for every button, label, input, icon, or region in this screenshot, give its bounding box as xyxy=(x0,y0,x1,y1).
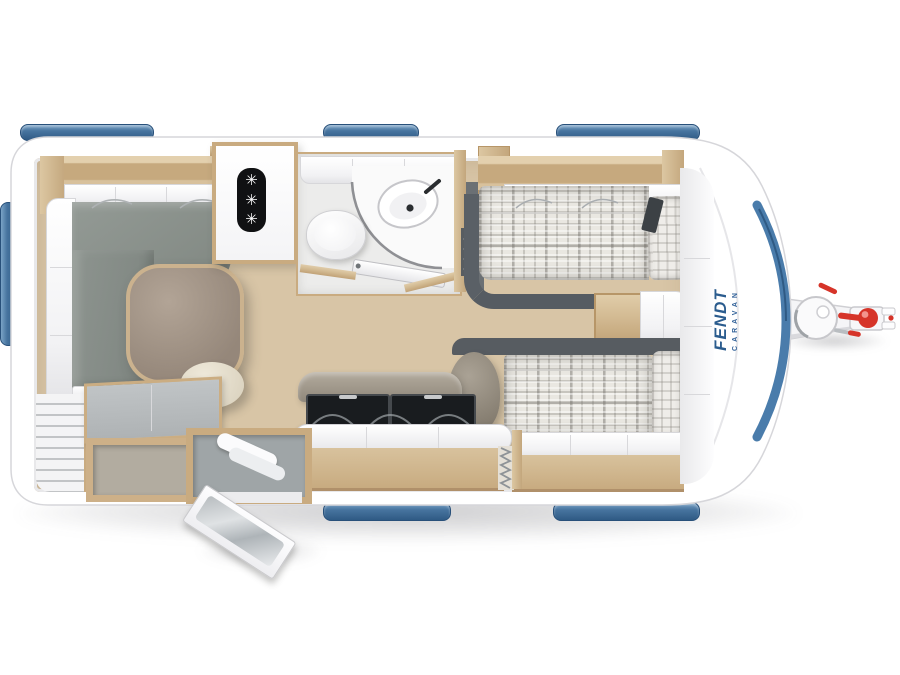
kitchen-base-cabinet xyxy=(300,448,504,491)
bottom-bed-base xyxy=(512,455,684,492)
caravan-floorplan: ✳ ✳ ✳ xyxy=(0,0,900,675)
kitchen-end-post xyxy=(512,430,522,489)
wardrobe-wire-shelves xyxy=(36,394,88,492)
sink-drain xyxy=(406,204,413,211)
fridge: ✳ ✳ ✳ xyxy=(212,142,298,264)
snowflake-icon: ✳ xyxy=(245,193,258,208)
toilet-lid xyxy=(314,217,356,251)
snowflake-icon: ✳ xyxy=(245,173,258,188)
door-hinge-dot xyxy=(355,263,361,269)
lounge-overhead-shelf xyxy=(64,156,216,186)
brand-logo-secondary: CARAVAN xyxy=(731,289,740,351)
fridge-freezer-badge: ✳ ✳ ✳ xyxy=(237,168,266,232)
bottom-bed-duvet xyxy=(504,355,652,437)
toilet xyxy=(306,210,366,260)
brand-logo-primary: FENDT xyxy=(712,289,729,351)
top-bed-lamp-wires xyxy=(512,192,632,214)
snowflake-icon: ✳ xyxy=(245,212,258,227)
hob-lid-handle xyxy=(339,395,357,399)
brand-logo: FENDT CARAVAN xyxy=(704,274,748,366)
storage-box-left xyxy=(86,438,196,502)
sink-lid-handle xyxy=(424,395,442,399)
snowflake-icons: ✳ ✳ ✳ xyxy=(237,168,266,232)
